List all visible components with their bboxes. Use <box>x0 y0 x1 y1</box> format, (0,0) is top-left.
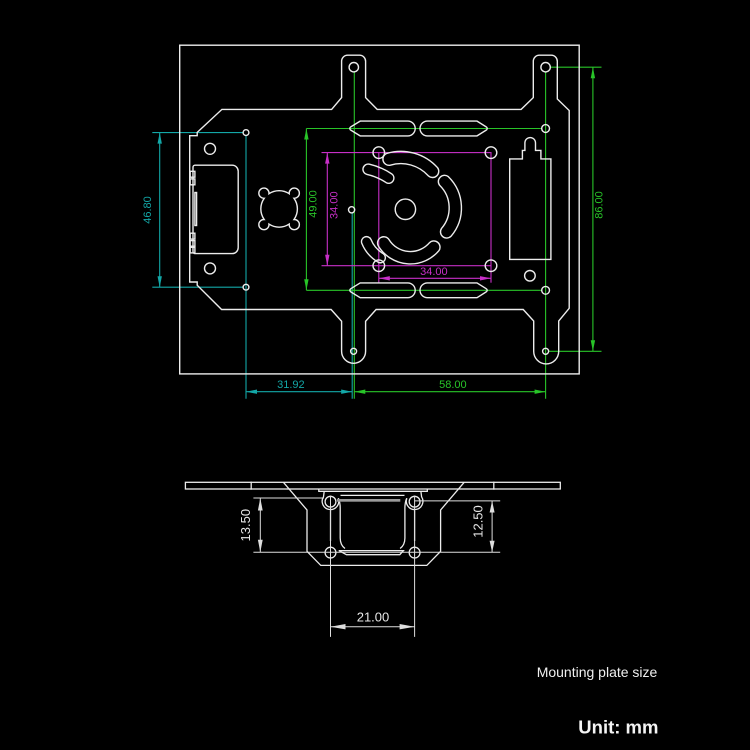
svg-text:34.00: 34.00 <box>420 266 448 278</box>
svg-text:21.00: 21.00 <box>357 610 390 625</box>
svg-text:58.00: 58.00 <box>439 379 467 391</box>
svg-text:34.00: 34.00 <box>329 191 341 219</box>
svg-text:46.80: 46.80 <box>142 196 154 224</box>
svg-text:86.00: 86.00 <box>594 191 606 219</box>
svg-text:49.00: 49.00 <box>308 190 320 218</box>
svg-text:Unit: mm: Unit: mm <box>578 717 658 738</box>
svg-text:31.92: 31.92 <box>277 379 305 391</box>
svg-text:13.50: 13.50 <box>238 509 253 542</box>
svg-text:Mounting plate size: Mounting plate size <box>537 664 658 680</box>
svg-text:12.50: 12.50 <box>471 505 486 538</box>
